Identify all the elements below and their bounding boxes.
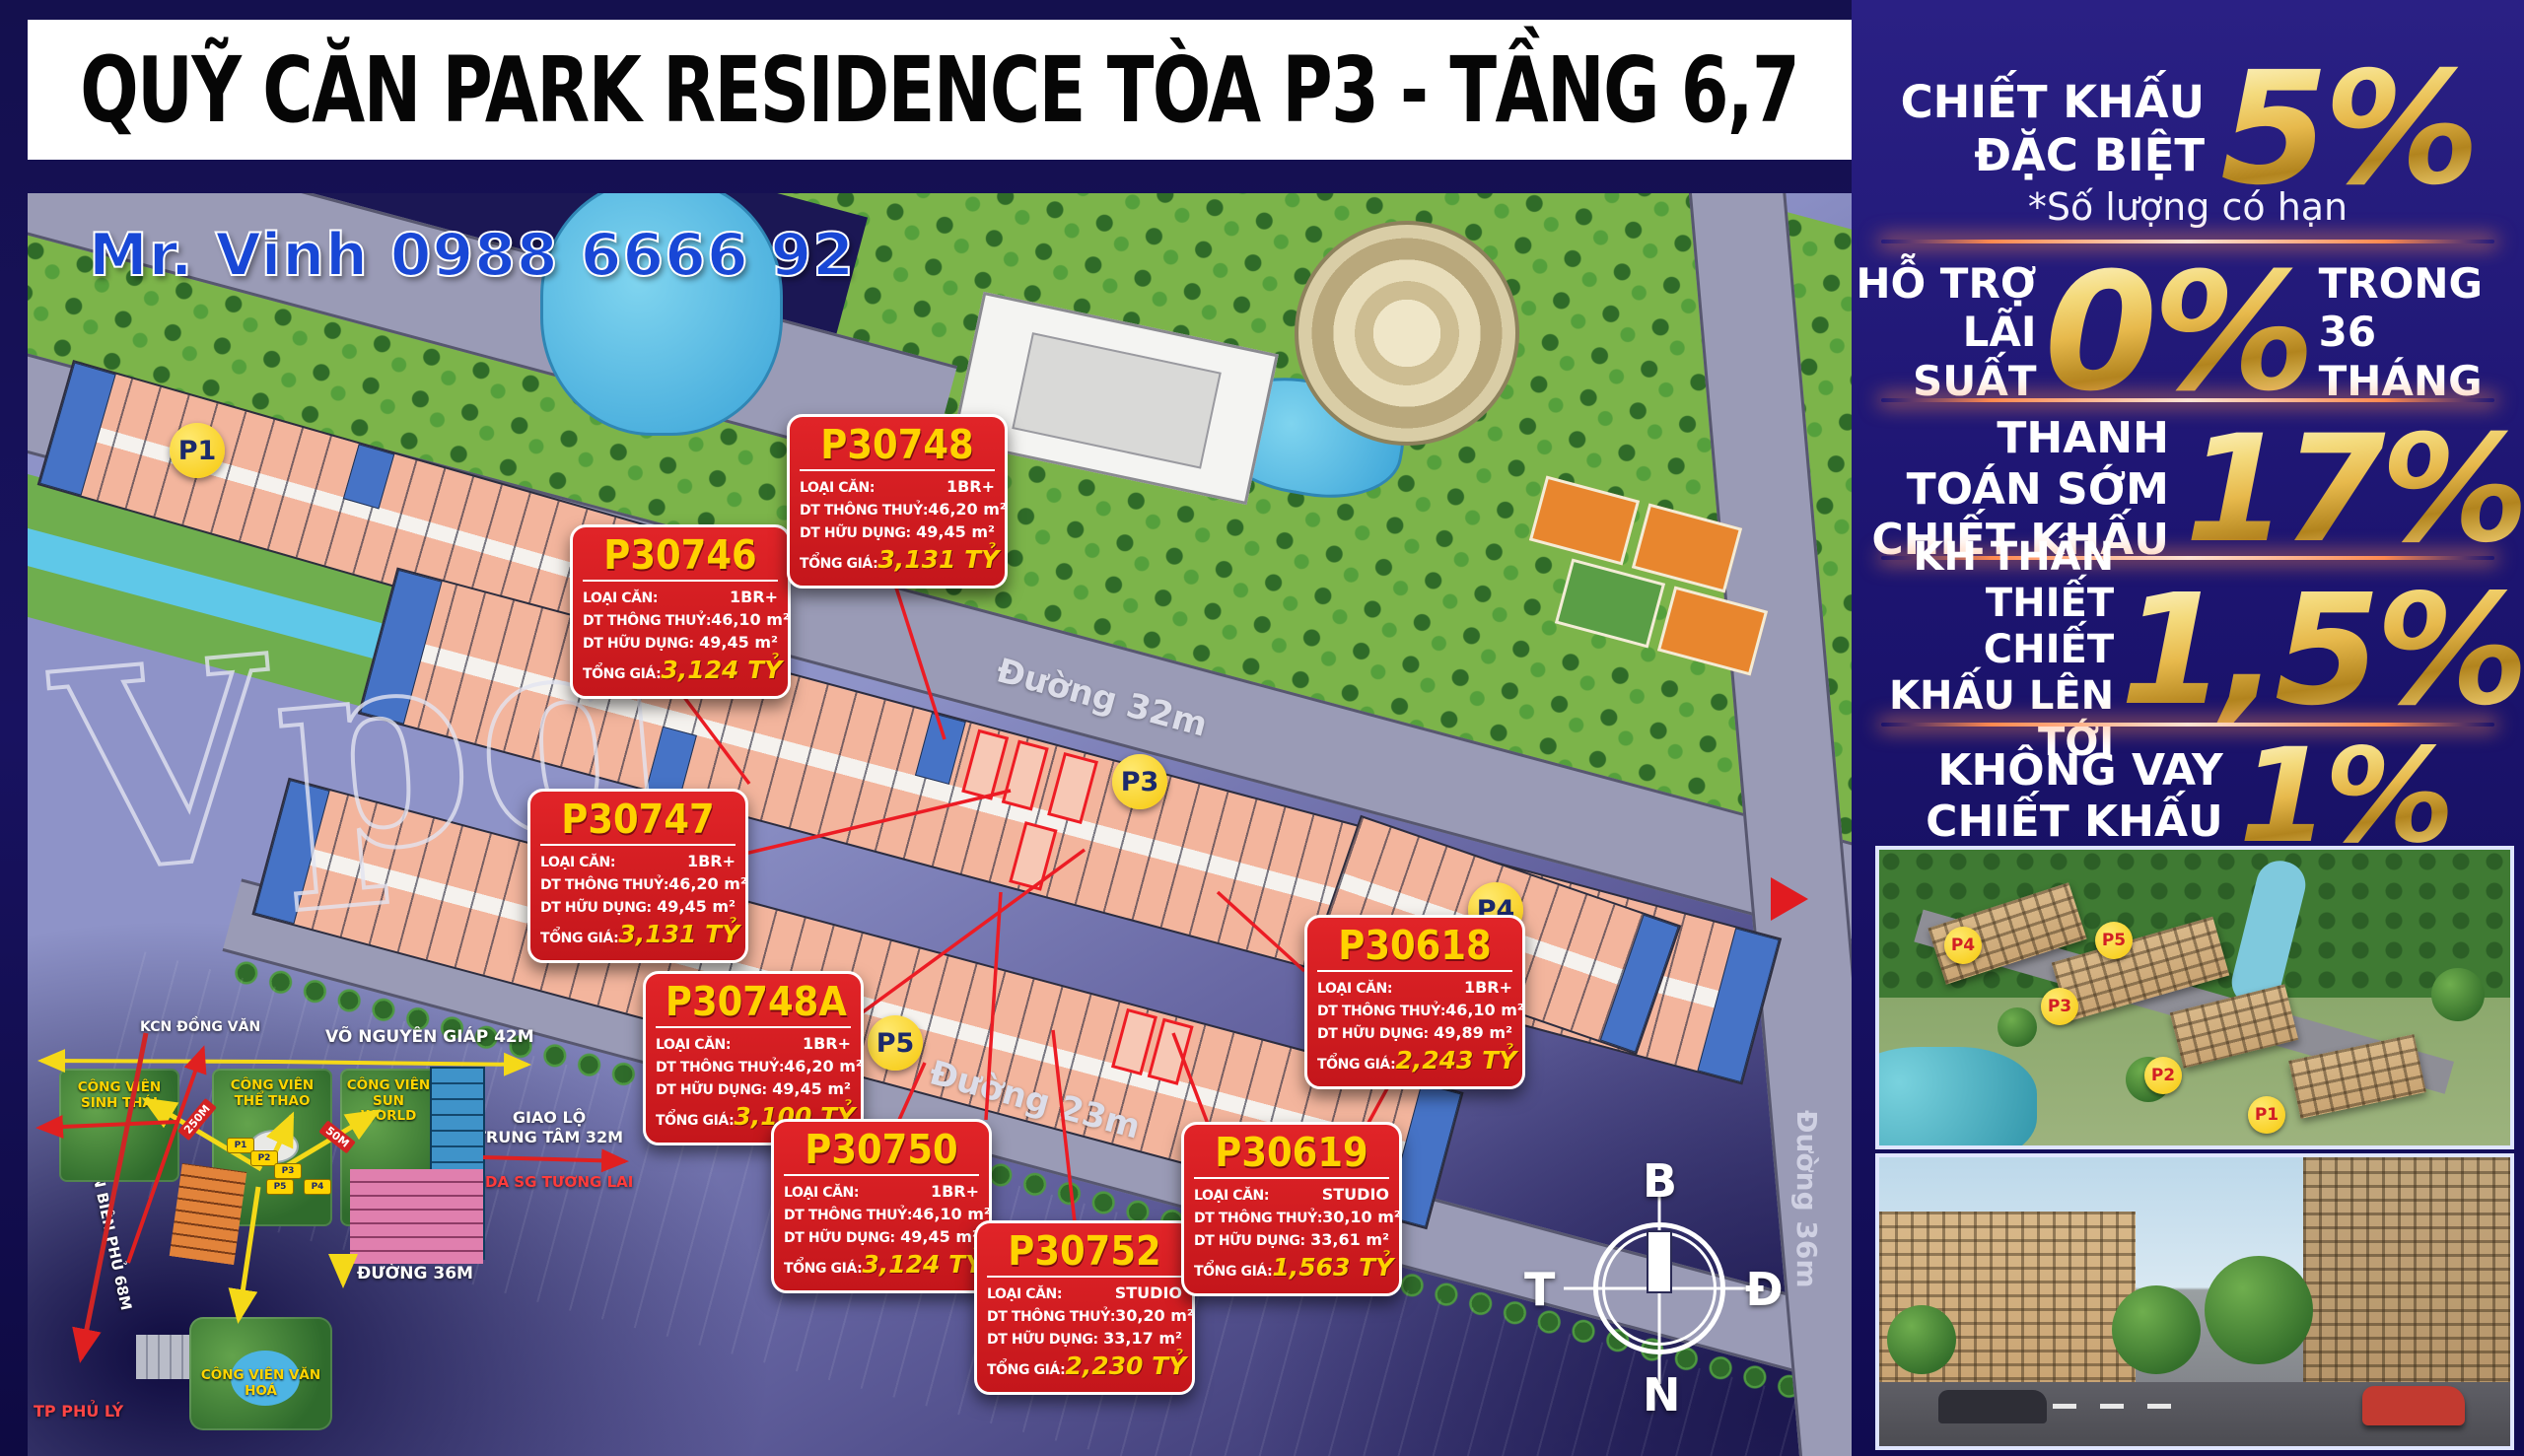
field-value: 49,45 m² (772, 1079, 851, 1098)
field-label: DT HỮU DỤNG: (1317, 1026, 1429, 1042)
promo-no-loan: KHÔNG VAY CHIẾT KHẤU 1% (1852, 737, 2524, 856)
field-value: 49,45 m² (900, 1227, 979, 1246)
field-label: TỔNG GIÁ: (1194, 1264, 1272, 1280)
photo-marker-p1: P1 (2248, 1096, 2285, 1134)
photo-marker-p4: P4 (1944, 927, 1982, 964)
field-value: 1BR+ (687, 852, 736, 870)
unit-id: P30747 (550, 796, 726, 843)
promo-text: CHIẾT KHẤU (1901, 76, 2205, 128)
field-label: LOẠI CĂN: (800, 480, 875, 496)
field-value: 1BR+ (730, 588, 778, 606)
field-value: STUDIO (1322, 1185, 1389, 1204)
field-label: DT HỮU DỤNG: (1194, 1233, 1305, 1249)
unit-card-p30747: P30747 LOẠI CĂN:1BR+ DT THÔNG THUỶ:46,20… (527, 789, 748, 963)
field-label: TỔNG GIÁ: (583, 666, 661, 682)
field-price: 3,124 TỶ (862, 1250, 983, 1279)
unit-id: P30746 (593, 531, 768, 579)
field-label: LOẠI CĂN: (1194, 1188, 1269, 1204)
promo-value: 17% (2185, 404, 2524, 576)
promo-text: TRONG (2319, 259, 2524, 309)
promo-loyal-customer: KH THÂN THIẾT CHIẾT KHẤU LÊN TỚI 1,5% (1852, 574, 2524, 727)
poster: QUỸ CĂN PARK RESIDENCE TÒA P3 - TẦNG 6,7 (0, 0, 2524, 1456)
field-label: LOẠI CĂN: (540, 855, 615, 870)
field-value: 49,89 m² (1434, 1023, 1512, 1042)
inset-arrows (30, 1021, 661, 1455)
photo-marker-p5: P5 (2095, 922, 2133, 959)
site-plan-map: Đường 32m Đường 23m Đường 36m P1 P3 P5 P… (28, 193, 1852, 1456)
field-label: DT THÔNG THUỶ: (1317, 1004, 1445, 1019)
photo-dark-car (1938, 1390, 2047, 1423)
compass-east: Đ (1745, 1263, 1784, 1316)
unit-card-p30618: P30618 LOẠI CĂN:1BR+ DT THÔNG THUỶ:46,10… (1304, 915, 1525, 1089)
field-value: 1BR+ (803, 1034, 851, 1053)
unit-id: P30748A (666, 978, 841, 1025)
field-label: DT HỮU DỤNG: (784, 1230, 895, 1246)
photo-water (1875, 1047, 2037, 1149)
field-label: TỔNG GIÁ: (784, 1261, 862, 1277)
promo-sidebar: CHIẾT KHẤU ĐẶC BIỆT 5% *Số lượng có hạn … (1852, 0, 2524, 1456)
field-label: LOẠI CĂN: (583, 590, 658, 606)
field-label: DT THÔNG THUỶ: (583, 613, 711, 629)
field-price: 1,563 TỶ (1272, 1253, 1393, 1282)
unit-id: P30752 (997, 1227, 1172, 1275)
field-label: DT THÔNG THUỶ: (540, 877, 668, 893)
location-inset-map: CÔNG VIÊN SINH THÁI CÔNG VIÊN THỂ THAO C… (30, 1021, 661, 1455)
promo-text: 36 THÁNG (2319, 308, 2524, 405)
field-value: 49,45 m² (699, 633, 778, 652)
street-render-photo (1875, 1153, 2514, 1450)
aerial-render-photo: P4 P5 P3 P2 P1 (1875, 846, 2514, 1149)
field-price: 3,131 TỶ (877, 545, 999, 574)
unit-id: P30748 (809, 421, 985, 468)
photo-marker-p3: P3 (2041, 988, 2078, 1025)
inset-marker-p3: P3 (274, 1163, 302, 1179)
promo-note: *Số lượng có hạn (1852, 185, 2524, 229)
field-label: TỔNG GIÁ: (800, 556, 877, 572)
field-price: 2,230 TỶ (1065, 1352, 1186, 1380)
field-value: 46,20 m² (928, 500, 1007, 519)
field-label: DT THÔNG THUỶ: (784, 1208, 912, 1223)
field-label: DT THÔNG THUỶ: (987, 1309, 1115, 1325)
title-banner: QUỸ CĂN PARK RESIDENCE TÒA P3 - TẦNG 6,7 (28, 20, 1852, 160)
field-value: 33,17 m² (1103, 1329, 1182, 1348)
field-value: 46,20 m² (668, 874, 747, 893)
field-price: 2,243 TỶ (1395, 1046, 1516, 1075)
promo-text: KH THÂN THIẾT (1852, 534, 2114, 627)
promo-text: CHIẾT KHẤU (1926, 797, 2223, 848)
red-triangle-icon (1771, 877, 1808, 921)
field-label: LOẠI CĂN: (1317, 981, 1392, 997)
field-label: DT THÔNG THUỶ: (800, 503, 928, 519)
field-value: STUDIO (1115, 1283, 1182, 1302)
field-value: 33,61 m² (1310, 1230, 1389, 1249)
field-label: TỔNG GIÁ: (540, 931, 618, 946)
field-label: TỔNG GIÁ: (656, 1113, 734, 1129)
field-value: 46,10 m² (1445, 1001, 1524, 1019)
field-value: 1BR+ (1464, 978, 1512, 997)
field-label: DT HỮU DỤNG: (800, 525, 911, 541)
unit-card-p30746: P30746 LOẠI CĂN:1BR+ DT THÔNG THUỶ:46,10… (570, 524, 791, 699)
field-value: 46,10 m² (711, 610, 790, 629)
field-label: DT HỮU DỤNG: (656, 1082, 767, 1098)
inset-marker-p5: P5 (266, 1179, 294, 1195)
promo-text: HỖ TRỢ (1852, 259, 2036, 309)
unit-card-p30748: P30748 LOẠI CĂN:1BR+ DT THÔNG THUỶ:46,20… (787, 414, 1008, 589)
unit-id: P30618 (1327, 922, 1503, 969)
promo-interest-support: HỖ TRỢ LÃI SUẤT 0% TRONG 36 THÁNG (1852, 258, 2524, 406)
field-label: LOẠI CĂN: (987, 1286, 1062, 1302)
compass-south: N (1643, 1368, 1681, 1421)
field-value: 49,45 m² (916, 522, 995, 541)
unit-id: P30750 (794, 1126, 969, 1173)
unit-card-p30619: P30619 LOẠI CĂN:STUDIO DT THÔNG THUỶ:30,… (1181, 1122, 1402, 1296)
photo-red-car (2362, 1386, 2465, 1425)
field-label: TỔNG GIÁ: (987, 1362, 1065, 1378)
field-value: 1BR+ (931, 1182, 979, 1201)
photo-building-right (2303, 1157, 2510, 1404)
agent-contact: Mr. Vinh 0988 6666 92 (89, 221, 855, 290)
field-price: 3,124 TỶ (661, 656, 782, 684)
field-value: 49,45 m² (657, 897, 736, 916)
field-label: LOẠI CĂN: (656, 1037, 731, 1053)
field-price: 3,131 TỶ (618, 920, 739, 948)
field-label: DT HỮU DỤNG: (987, 1332, 1098, 1348)
field-label: DT HỮU DỤNG: (583, 636, 694, 652)
compass-icon (1593, 1222, 1725, 1354)
field-value: 46,20 m² (784, 1057, 863, 1075)
field-label: LOẠI CĂN: (784, 1185, 859, 1201)
field-value: 1BR+ (946, 477, 995, 496)
promo-text: KHÔNG VAY (1926, 745, 2223, 797)
promo-value: 1,5% (2120, 561, 2524, 739)
unit-id: P30619 (1204, 1129, 1379, 1176)
promo-text: THANH TOÁN SỚM (1852, 413, 2169, 516)
field-value: 30,20 m² (1115, 1306, 1194, 1325)
unit-card-p30752: P30752 LOẠI CĂN:STUDIO DT THÔNG THUỶ:30,… (974, 1220, 1195, 1395)
field-label: DT THÔNG THUỶ: (656, 1060, 784, 1075)
field-label: DT HỮU DỤNG: (540, 900, 652, 916)
unit-card-p30750: P30750 LOẠI CĂN:1BR+ DT THÔNG THUỶ:46,10… (771, 1119, 992, 1293)
compass-north: B (1643, 1154, 1677, 1208)
field-label: DT THÔNG THUỶ: (1194, 1211, 1322, 1226)
inset-marker-p4: P4 (304, 1179, 331, 1195)
compass-west: T (1524, 1263, 1555, 1316)
field-label: TỔNG GIÁ: (1317, 1057, 1395, 1073)
promo-text: ĐẶC BIỆT (1901, 129, 2205, 181)
divider-glow (1881, 398, 2494, 402)
field-value: 46,10 m² (912, 1205, 991, 1223)
page-title: QUỸ CĂN PARK RESIDENCE TÒA P3 - TẦNG 6,7 (81, 37, 1799, 143)
photo-marker-p2: P2 (2144, 1057, 2182, 1094)
field-value: 30,10 m² (1322, 1208, 1401, 1226)
promo-text: LÃI SUẤT (1852, 308, 2036, 405)
